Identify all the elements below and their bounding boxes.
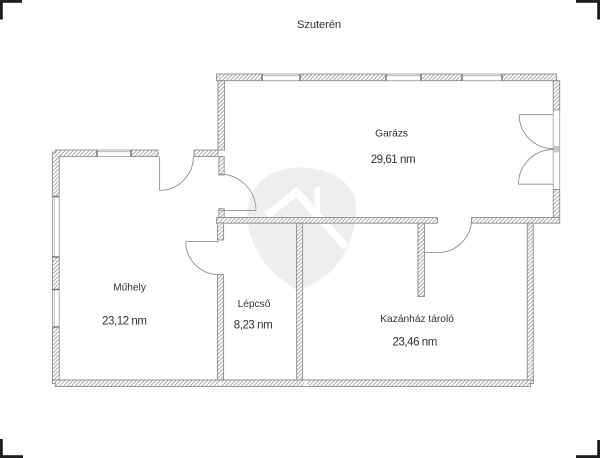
svg-text:8,23 nm: 8,23 nm: [234, 320, 272, 332]
svg-text:Szuterén: Szuterén: [297, 19, 341, 31]
svg-text:23,46 nm: 23,46 nm: [393, 336, 437, 348]
svg-text:Kazánház tároló: Kazánház tároló: [380, 314, 454, 325]
svg-text:Műhely: Műhely: [113, 282, 147, 293]
svg-text:23,12 nm: 23,12 nm: [102, 315, 146, 327]
svg-text:Garázs: Garázs: [375, 128, 408, 139]
svg-text:29,61 nm: 29,61 nm: [371, 154, 415, 166]
svg-text:Lépcső: Lépcső: [238, 299, 271, 310]
